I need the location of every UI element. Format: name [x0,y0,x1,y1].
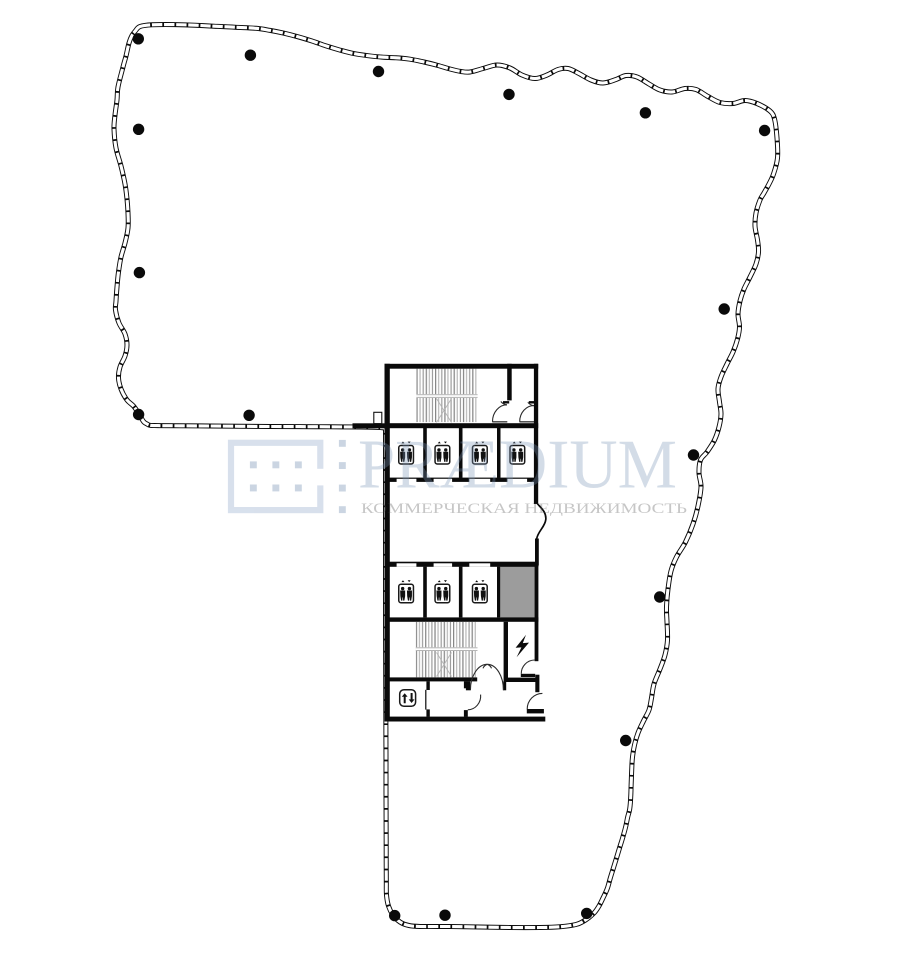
svg-text:КОММЕРЧЕСКАЯ НЕДВИЖИМОСТЬ: КОММЕРЧЕСКАЯ НЕДВИЖИМОСТЬ [361,501,687,517]
svg-text:PRÆDIUM: PRÆDIUM [358,427,677,504]
